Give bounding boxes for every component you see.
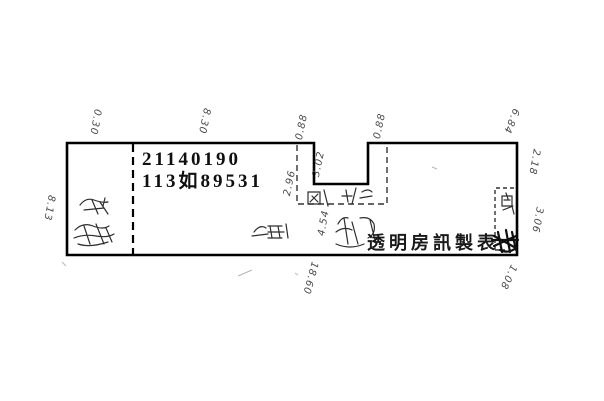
handwritten-scribble-left-lower: [74, 224, 114, 246]
parcel-sketch-canvas: [0, 0, 604, 401]
stray-mark-1: [238, 270, 252, 276]
publisher-stamp: 透明房訊製表: [367, 229, 499, 255]
cadastral-map-sketch: 0.30 8.30 0.88 0.88 6.84 3.02 2.96 4.54 …: [0, 0, 604, 401]
parcel-id-line1: 21140190: [142, 149, 263, 171]
parcel-id-line2: 113如89531: [142, 171, 263, 193]
handwritten-scribble-notch-left: [308, 190, 328, 206]
handwritten-scribble-right-box: [502, 193, 514, 214]
stray-mark-2: [295, 273, 298, 275]
handwritten-scribble-notch-right: [342, 188, 372, 204]
stray-mark-4: [432, 167, 437, 169]
handwritten-scribble-center: [252, 224, 288, 238]
stray-mark-3: [62, 262, 66, 266]
handwritten-scribble-left-upper: [80, 198, 108, 214]
parcel-id-block: 21140190 113如89531: [142, 149, 263, 193]
